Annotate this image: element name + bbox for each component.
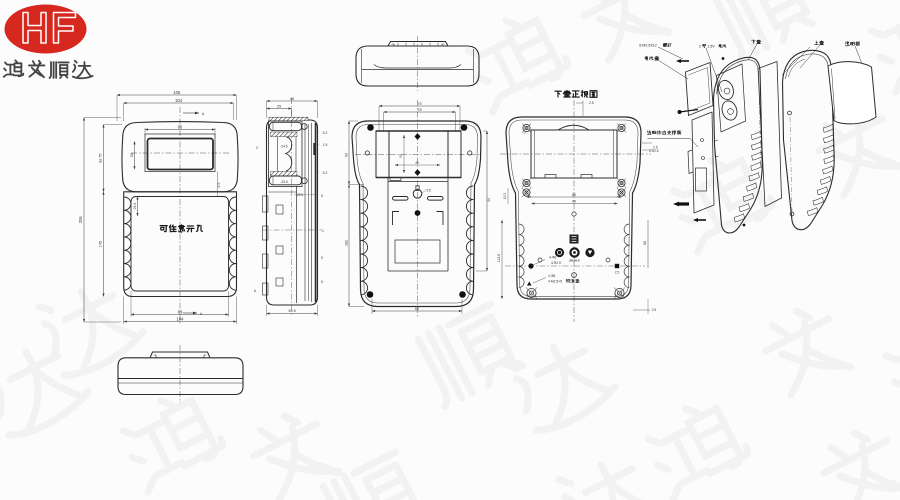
svg-text:69: 69 xyxy=(178,309,183,314)
svg-text:33: 33 xyxy=(130,153,134,157)
svg-text:45: 45 xyxy=(415,161,419,165)
svg-text:-25.5: -25.5 xyxy=(280,180,287,184)
svg-text:2.5: 2.5 xyxy=(615,271,620,275)
svg-text:5: 5 xyxy=(321,280,323,284)
svg-text:68: 68 xyxy=(643,241,647,245)
svg-text:40: 40 xyxy=(572,199,576,203)
svg-text:113.6: 113.6 xyxy=(497,254,501,262)
svg-text:6-M2.5X12: 6-M2.5X12 xyxy=(639,44,657,48)
svg-text:4-Φ6: 4-Φ6 xyxy=(548,274,556,278)
svg-text:4.5: 4.5 xyxy=(217,183,221,188)
svg-text:25: 25 xyxy=(277,104,281,108)
svg-text:5.2: 5.2 xyxy=(323,131,328,135)
svg-text:39.5: 39.5 xyxy=(288,309,295,313)
svg-text:2-R2.5: 2-R2.5 xyxy=(649,149,659,153)
svg-text:75: 75 xyxy=(417,108,421,112)
svg-text:104: 104 xyxy=(175,98,183,103)
svg-text:1: 1 xyxy=(322,229,324,233)
svg-text:5: 5 xyxy=(321,194,323,198)
svg-text:20-50-2: 20-50-2 xyxy=(569,259,580,263)
svg-text:104: 104 xyxy=(177,316,185,321)
svg-text:9: 9 xyxy=(321,256,323,260)
svg-text:65: 65 xyxy=(178,124,183,129)
svg-text:106: 106 xyxy=(173,90,181,95)
svg-text:12.5: 12.5 xyxy=(503,193,507,199)
svg-text:2: 2 xyxy=(699,45,701,49)
svg-text:1.5V: 1.5V xyxy=(707,45,715,49)
svg-text:4-M2.5×5: 4-M2.5×5 xyxy=(548,280,562,284)
svg-text:25.5: 25.5 xyxy=(297,193,304,197)
svg-text:TM: TM xyxy=(75,7,81,12)
svg-text:93: 93 xyxy=(344,153,348,157)
svg-text:24.5: 24.5 xyxy=(133,203,137,210)
svg-text:206: 206 xyxy=(78,216,83,224)
svg-text:5.2: 5.2 xyxy=(323,171,328,175)
svg-text:53: 53 xyxy=(399,154,403,158)
svg-text:5.5: 5.5 xyxy=(427,189,432,193)
svg-text:145: 145 xyxy=(99,241,103,247)
svg-text:79: 79 xyxy=(417,102,421,106)
svg-text:4-Φ6: 4-Φ6 xyxy=(549,256,557,260)
svg-text:44: 44 xyxy=(487,198,491,202)
svg-text:2: 2 xyxy=(256,146,258,150)
svg-text:2.5: 2.5 xyxy=(652,308,657,312)
svg-text:82.75: 82.75 xyxy=(99,154,103,163)
svg-text:182: 182 xyxy=(344,240,348,246)
svg-text:-24.5: -24.5 xyxy=(280,145,287,149)
svg-text:60: 60 xyxy=(415,307,419,311)
svg-text:6: 6 xyxy=(254,289,256,293)
svg-text:45: 45 xyxy=(290,97,294,101)
svg-text:4-R2.5: 4-R2.5 xyxy=(551,261,561,265)
svg-text:1.5: 1.5 xyxy=(323,143,328,147)
svg-text:60: 60 xyxy=(572,193,576,197)
svg-text:2.5: 2.5 xyxy=(589,101,594,105)
